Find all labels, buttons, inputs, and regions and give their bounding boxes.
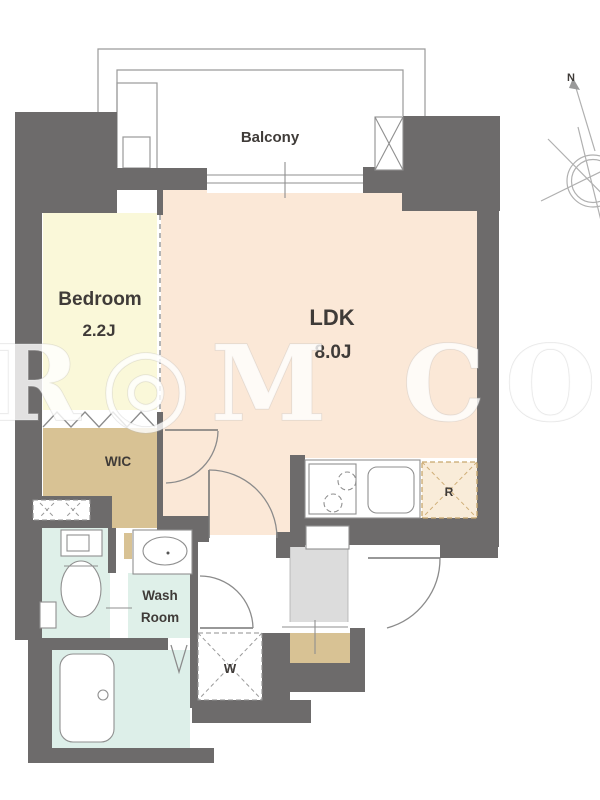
balcony-label: Balcony [241,129,300,146]
washroom-floor [128,573,192,638]
compass-north-label: N [567,72,575,84]
floor-plan-svg: Balcony Bedroom 2.2J LDK 8.0J WIC Wash R… [0,0,600,800]
bedroom-label: Bedroom [58,289,141,310]
washroom-label-line1: Wash [142,588,178,603]
bathtub-drain [98,690,108,700]
kitchen-sink [368,467,414,513]
toilet-bowl [61,561,101,617]
toilet-paper-holder [40,602,56,628]
refrigerator-marker-label: R [445,485,454,499]
washroom-label-line2: Room [141,610,179,625]
floor-plan-page: Balcony Bedroom 2.2J LDK 8.0J WIC Wash R… [0,0,600,800]
entrance-door [387,558,440,628]
shelf-box [33,500,90,520]
entry-floor [290,545,348,623]
bedroom-window [120,190,157,213]
balcony-unit-box [123,137,150,168]
entry-storage [306,526,349,549]
wic-label: WIC [105,454,131,469]
washroom-door [200,576,253,628]
compass-rose: N [541,72,600,237]
washer-marker-label: W [224,661,237,676]
watermark-text: R◎M COR [0,322,600,445]
